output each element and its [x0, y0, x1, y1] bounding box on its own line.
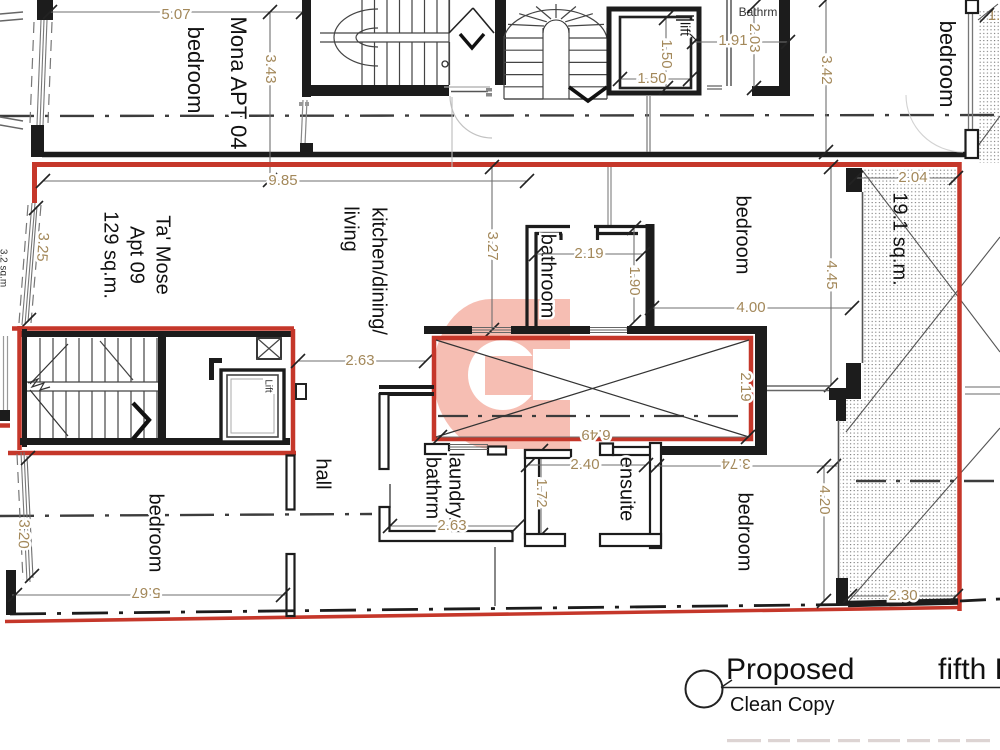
svg-text:2.63: 2.63 — [437, 517, 466, 534]
svg-text:bathrm: bathrm — [422, 457, 444, 519]
svg-text:living: living — [340, 206, 362, 252]
svg-text:2.63: 2.63 — [345, 352, 374, 369]
svg-text:Lift: Lift — [262, 379, 273, 393]
svg-text:3.74: 3.74 — [721, 455, 750, 472]
svg-text:1.72: 1.72 — [533, 478, 550, 507]
svg-text:Proposed: Proposed — [726, 653, 854, 686]
svg-text:3.42: 3.42 — [818, 55, 835, 84]
svg-text:laundry/: laundry/ — [445, 452, 467, 524]
svg-text:bedroom: bedroom — [183, 27, 208, 114]
svg-text:2.19: 2.19 — [574, 245, 603, 262]
svg-text:3.25: 3.25 — [33, 232, 52, 262]
svg-text:bedroom: bedroom — [935, 21, 960, 108]
svg-text:Clean Copy: Clean Copy — [730, 694, 835, 716]
svg-text:Bathrm: Bathrm — [739, 5, 778, 19]
svg-text:2.03: 2.03 — [746, 23, 763, 52]
svg-text:3.86: 3.86 — [862, 0, 891, 3]
svg-text:fifth Fl: fifth Fl — [938, 653, 1000, 686]
svg-text:1.91: 1.91 — [718, 32, 747, 49]
svg-text:4.45: 4.45 — [823, 260, 840, 289]
svg-text:4.00: 4.00 — [736, 299, 765, 316]
svg-text:3.2 sq.m: 3.2 sq.m — [0, 249, 8, 287]
svg-text:1.: 1. — [988, 7, 1000, 24]
svg-text:19.1 sq.m.: 19.1 sq.m. — [889, 192, 911, 285]
svg-text:1.50: 1.50 — [658, 39, 675, 68]
svg-text:bedroom: bedroom — [732, 196, 754, 275]
svg-text:1.50: 1.50 — [637, 70, 666, 87]
svg-text:hall: hall — [312, 458, 334, 489]
svg-text:bedroom: bedroom — [734, 493, 756, 572]
svg-text:3.27: 3.27 — [484, 231, 501, 260]
svg-text:lift: lift — [677, 22, 693, 36]
svg-text:2.40: 2.40 — [570, 456, 599, 473]
svg-text:ensuite: ensuite — [616, 457, 638, 522]
svg-text:kitchen/dining/: kitchen/dining/ — [368, 207, 390, 335]
svg-text:5.67: 5.67 — [131, 584, 160, 601]
svg-text:6.49: 6.49 — [581, 426, 610, 443]
svg-text:3.20: 3.20 — [15, 519, 33, 549]
svg-text:9.85: 9.85 — [268, 172, 297, 189]
svg-text:5.07: 5.07 — [161, 6, 190, 23]
svg-text:2.04: 2.04 — [898, 169, 927, 186]
svg-text:2.30: 2.30 — [888, 587, 917, 604]
svg-text:Mona APT 04: Mona APT 04 — [226, 17, 251, 150]
svg-text:4.20: 4.20 — [816, 485, 833, 514]
svg-text:129 sq.m.: 129 sq.m. — [100, 211, 122, 299]
svg-text:bathroom: bathroom — [537, 234, 559, 319]
svg-text:bedroom: bedroom — [145, 494, 167, 573]
svg-text:1.90: 1.90 — [626, 266, 643, 295]
svg-text:3.43: 3.43 — [262, 54, 279, 83]
svg-text:2.19: 2.19 — [737, 372, 754, 401]
svg-text:Apt 09: Apt 09 — [126, 226, 148, 284]
svg-text:Ta' Mose: Ta' Mose — [152, 215, 174, 294]
